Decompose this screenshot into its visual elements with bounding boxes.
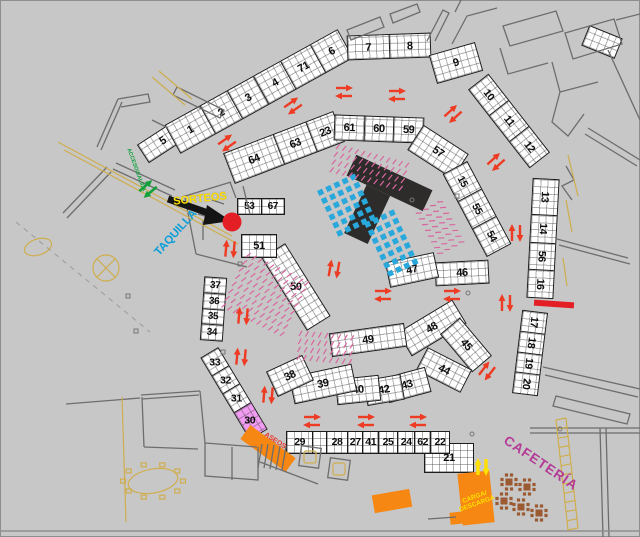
- stall-strip-s7_8: 78: [347, 32, 432, 60]
- stall-number: 34: [206, 327, 217, 339]
- stall-number: 7: [365, 41, 371, 53]
- stall-strip-s61_59: 616059: [334, 114, 425, 143]
- stall-27: 27: [347, 432, 363, 453]
- stall-7: 7: [348, 35, 389, 59]
- stall-number: 55: [469, 201, 485, 216]
- stall-number: 47: [405, 263, 419, 277]
- stall-number: 11: [501, 113, 517, 129]
- stall-number: 23: [318, 124, 333, 139]
- stall-number: 33: [210, 355, 221, 367]
- stall-20: 20: [513, 372, 539, 396]
- stall-number: 21: [443, 452, 454, 464]
- stall-number: 6: [326, 44, 337, 57]
- stall-number: 5: [157, 134, 168, 147]
- stall-strip-s15_54: 155554: [443, 161, 512, 257]
- stall-number: 8: [407, 39, 413, 51]
- stall-strip-unlabeled: [581, 25, 623, 59]
- stall-strip-s37_34: 37363534: [199, 276, 226, 341]
- stall-strip-s49: 49: [329, 323, 408, 357]
- stall-49: 49: [330, 324, 406, 356]
- stall-number: 36: [208, 295, 219, 307]
- stall-8: 8: [388, 33, 430, 57]
- stall-number: 15: [455, 174, 471, 189]
- stall-number: 45: [458, 337, 475, 353]
- stall-number: 10: [481, 87, 497, 103]
- stall-60: 60: [363, 116, 393, 141]
- stall-24: 24: [397, 432, 414, 453]
- stall-46: 46: [435, 261, 488, 286]
- stall-number: 46: [456, 267, 468, 280]
- stall-number: 14: [537, 222, 550, 234]
- stall-number: 41: [365, 436, 376, 448]
- stall-16: 16: [527, 269, 553, 298]
- stall-19: 19: [516, 351, 542, 375]
- stall-number: 57: [430, 144, 446, 160]
- stall-number: 2: [216, 105, 227, 118]
- stall-strip-srow: 2928274125246222: [286, 431, 450, 454]
- stall-number: 71: [295, 58, 311, 74]
- stall-number: 27: [350, 436, 361, 448]
- stall-number: 63: [288, 135, 303, 150]
- stall-number: 25: [383, 436, 394, 448]
- stall-number: 16: [534, 278, 547, 290]
- stall-53: 53: [238, 199, 261, 214]
- stall-number: 32: [220, 374, 231, 386]
- stall-number: 62: [417, 436, 428, 448]
- stall-9: 9: [430, 43, 482, 83]
- stall-strip-s33_30: 33323130: [200, 346, 267, 439]
- stall-number: 24: [401, 436, 412, 448]
- stall-number: 28: [332, 436, 343, 448]
- stall-empty: [312, 432, 326, 453]
- stall-41: 41: [362, 432, 378, 453]
- stall-strip-s10_12: 101112: [468, 74, 550, 169]
- stall-number: 1: [185, 122, 196, 135]
- stall-strip-s47: 47: [385, 252, 439, 288]
- stall-number: 3: [243, 90, 254, 103]
- stall-number: 50: [290, 281, 301, 293]
- stall-number: 64: [247, 151, 262, 166]
- stall-number: 29: [294, 436, 305, 448]
- stall-number: 22: [435, 436, 446, 448]
- stall-number: 67: [268, 201, 278, 212]
- stall-number: 39: [316, 377, 330, 391]
- stall-25: 25: [378, 432, 397, 453]
- stall-number: 54: [484, 229, 500, 244]
- stall-29: 29: [287, 432, 312, 453]
- stall-51: 51: [242, 235, 276, 257]
- stall-strip-s17_20: 17181920: [512, 310, 548, 397]
- stall-22: 22: [430, 432, 449, 453]
- fairground-floor-plan: 5123471678910111213145616171819202129282…: [0, 0, 640, 537]
- stall-56: 56: [529, 241, 555, 270]
- stall-number: 17: [527, 316, 540, 328]
- stall-number: 38: [282, 368, 297, 384]
- stall-strip-s51: 51: [241, 234, 277, 258]
- stall-28: 28: [326, 432, 347, 453]
- stall-number: 4: [270, 75, 281, 88]
- stall-number: 18: [525, 337, 538, 349]
- stall-35: 35: [201, 308, 223, 325]
- stall-number: 49: [362, 333, 375, 346]
- stall-36: 36: [203, 292, 225, 309]
- stall-number: 35: [207, 311, 218, 323]
- stall-47: 47: [386, 253, 438, 286]
- stall-number: 9: [452, 56, 461, 69]
- stall-67: 67: [261, 199, 285, 214]
- stall-14: 14: [530, 213, 556, 242]
- stall-34: 34: [200, 323, 222, 340]
- stall-strip-s46: 46: [434, 260, 489, 287]
- stall-number: 13: [539, 191, 552, 203]
- stall-number: 59: [403, 124, 415, 136]
- stall-strip-s13_16: 13145616: [526, 177, 559, 298]
- stall-37: 37: [204, 277, 226, 293]
- stall-61: 61: [335, 115, 364, 140]
- stall-strip-s53_67: 5367: [237, 198, 285, 215]
- stall-number: 51: [253, 240, 264, 252]
- stall-number: 48: [424, 320, 440, 336]
- stall-number: 20: [520, 378, 533, 390]
- stall-strip-s9: 9: [429, 42, 483, 84]
- stall-number: 31: [231, 392, 242, 404]
- stall-number: 61: [343, 122, 355, 134]
- stall-strip-s64_23: 646323: [223, 110, 345, 183]
- stall-number: 60: [373, 123, 385, 135]
- stall-number: 56: [536, 250, 549, 262]
- stall-number: 12: [521, 139, 537, 155]
- stall-62: 62: [414, 432, 430, 453]
- stall-number: 53: [244, 201, 254, 212]
- stall-13: 13: [532, 178, 559, 214]
- stall-18: 18: [518, 330, 544, 354]
- stall-number: 19: [522, 357, 535, 369]
- stall-number: 44: [436, 362, 452, 378]
- stall-empty: [582, 26, 621, 57]
- stall-number: 37: [209, 280, 220, 292]
